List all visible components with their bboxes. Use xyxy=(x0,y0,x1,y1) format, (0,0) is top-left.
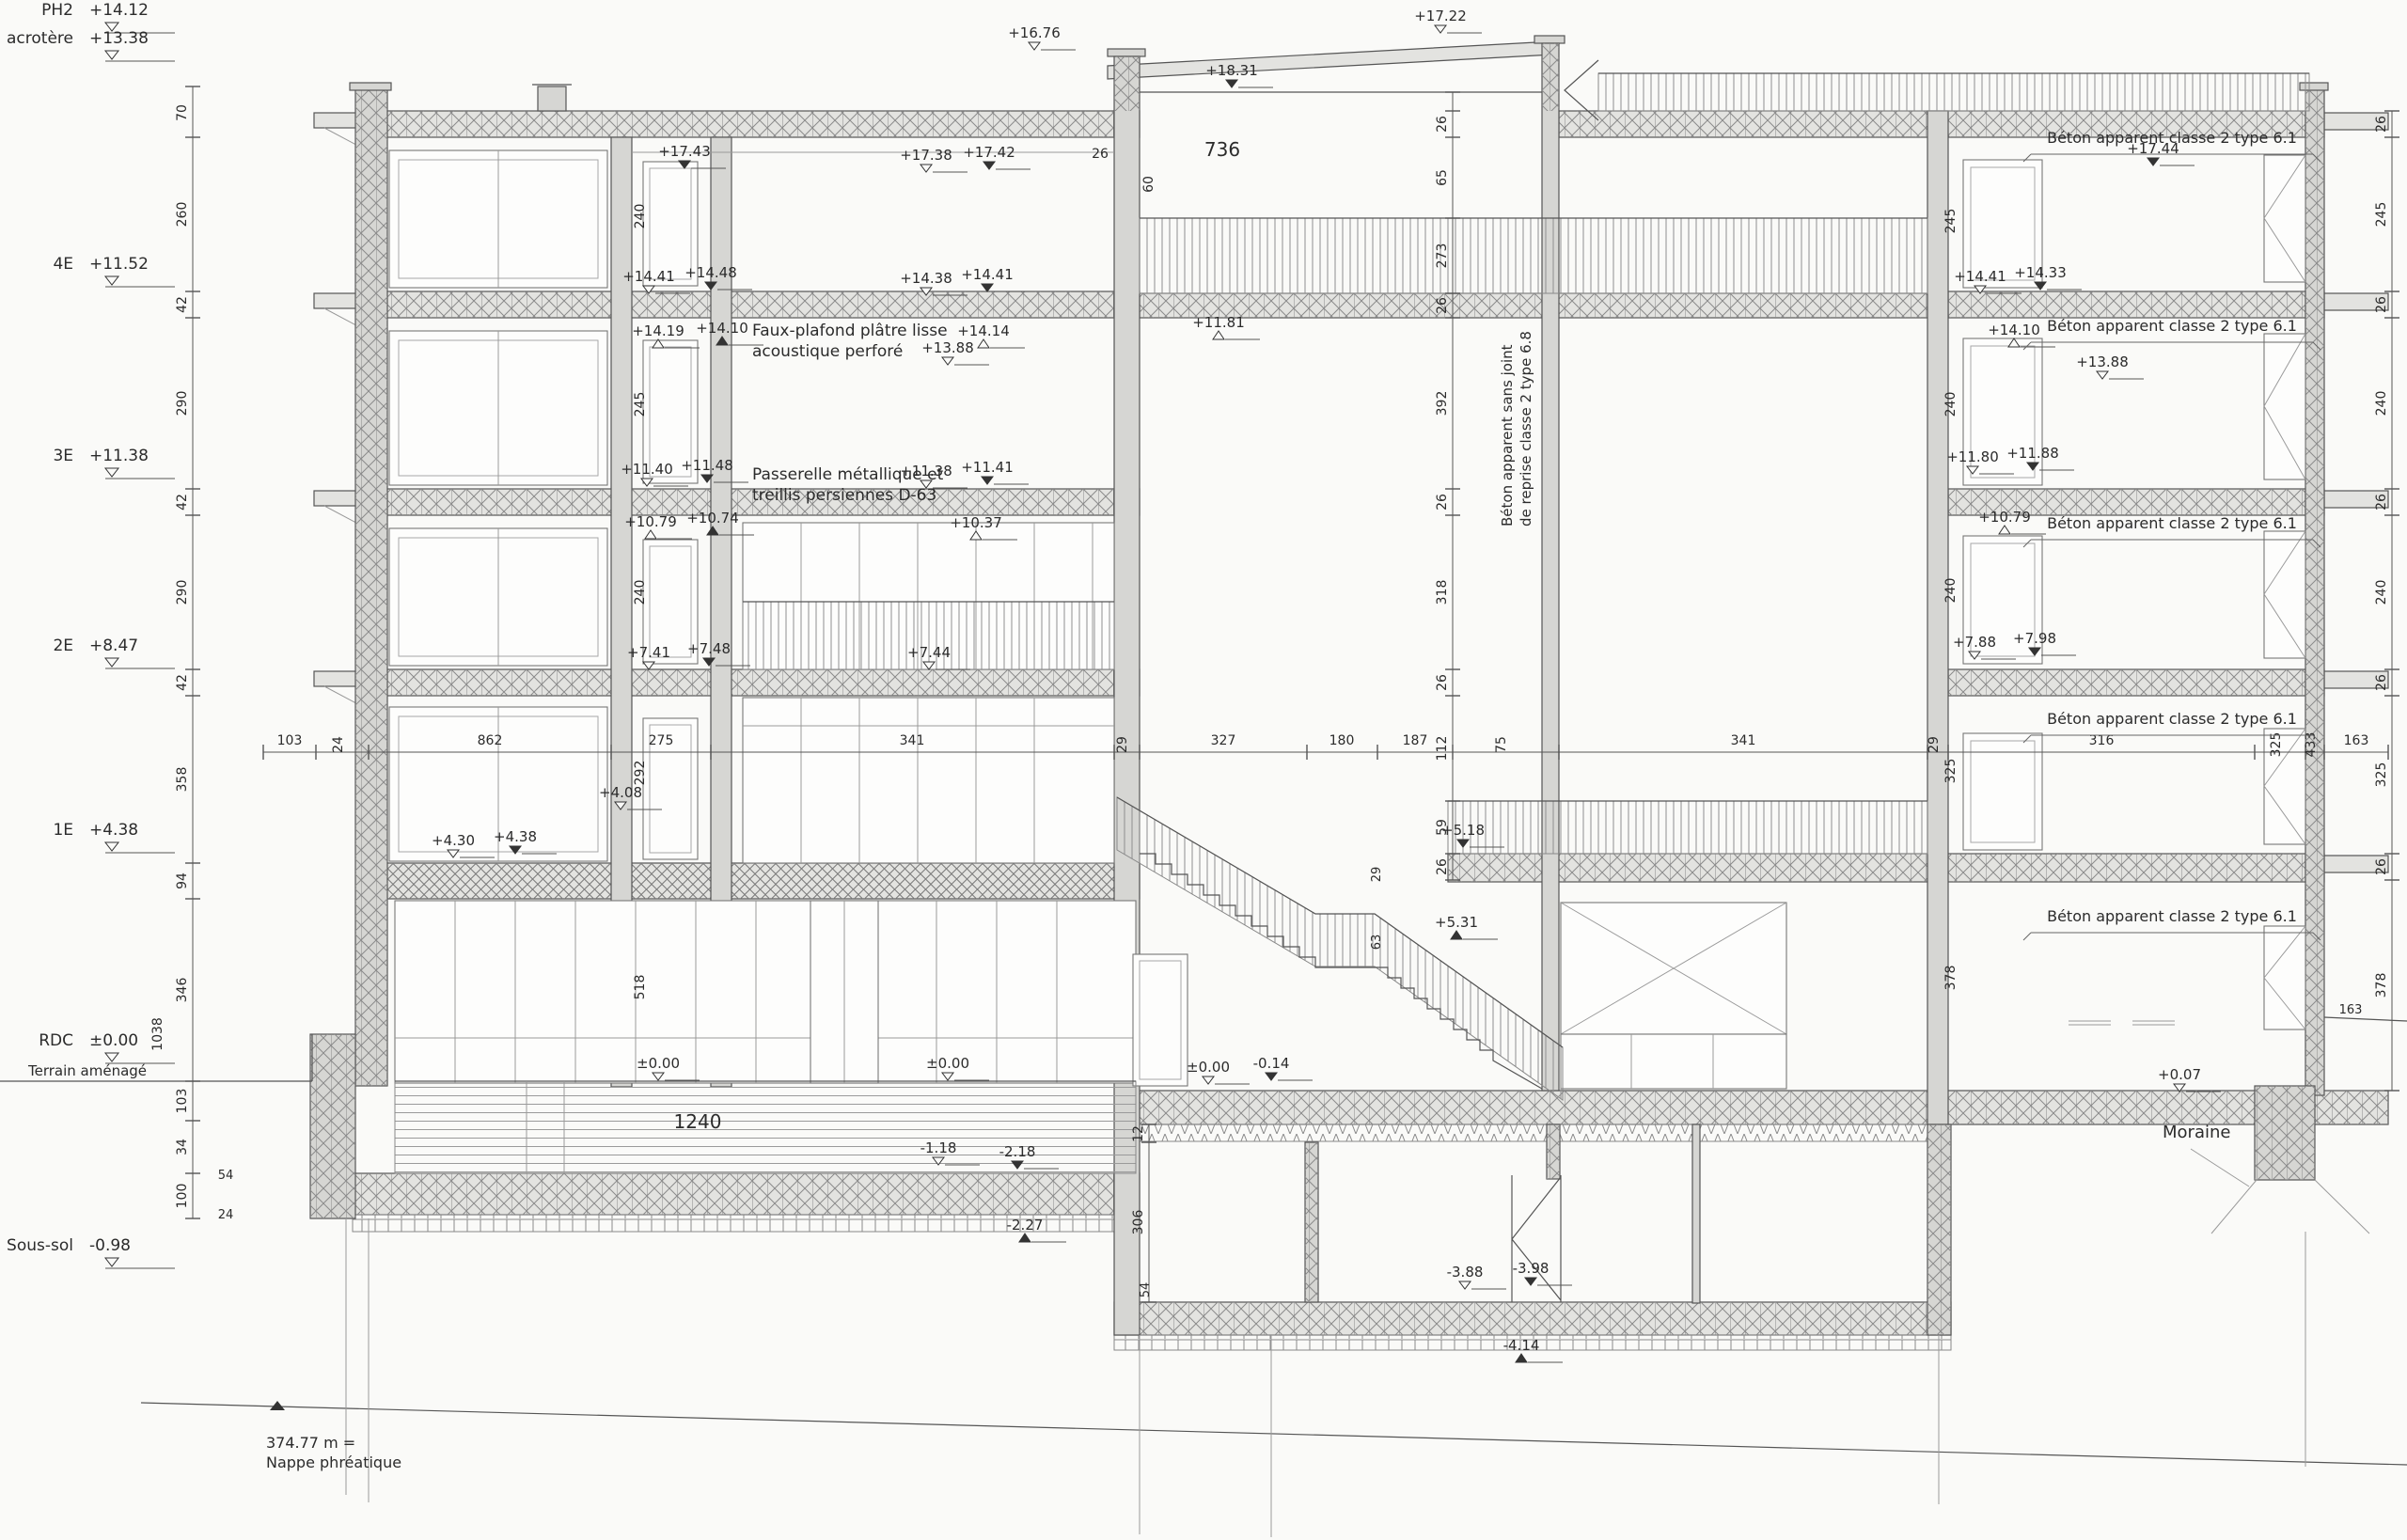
level-value: +14.12 xyxy=(89,1,149,20)
open-triangle-icon xyxy=(105,1053,118,1061)
dim-value: 736 xyxy=(1204,138,1240,161)
note-line: Béton apparent classe 2 type 6.1 xyxy=(2047,710,2297,728)
elevation-mark: +14.41 xyxy=(961,266,1029,291)
elevation-mark: +5.31 xyxy=(1435,914,1498,939)
dim-value: 273 xyxy=(1435,244,1450,269)
elevation-value: +10.79 xyxy=(624,513,677,530)
dim-chain-right-vertical: 2624526240262402632526378 xyxy=(2374,111,2399,1091)
dim-value: 112 xyxy=(1435,736,1450,762)
note: Moraine xyxy=(2163,1123,2230,1142)
elevation-mark: -3.98 xyxy=(1513,1260,1572,1285)
dim-value: 392 xyxy=(1435,391,1450,416)
elevation-value: +14.10 xyxy=(696,320,748,337)
dim-value: 26 xyxy=(2374,674,2389,691)
elevation-value: ±0.00 xyxy=(926,1055,969,1072)
building-section-svg: 7026042290422904235894346103341002624526… xyxy=(0,0,2407,1540)
dim-value: 378 xyxy=(1943,966,1959,991)
building-structure xyxy=(0,36,2407,1537)
elevation-value: +4.30 xyxy=(432,832,475,849)
level-name: RDC xyxy=(39,1031,73,1050)
note-line: treillis persiennes D-63 xyxy=(752,486,936,505)
dim-value: 306 xyxy=(1131,1210,1146,1235)
dim-chain-left-vertical: 702604229042290423589434610334100 xyxy=(175,86,200,1218)
dim-value: 42 xyxy=(175,296,190,313)
dim-value: 378 xyxy=(2374,973,2389,998)
dim-value: 325 xyxy=(2374,762,2389,788)
dim-value: 103 xyxy=(277,733,303,748)
dim-value: 518 xyxy=(633,975,648,1000)
level-name: Sous-sol xyxy=(7,1236,73,1255)
raised-roof xyxy=(1108,36,1598,120)
dim-value: 245 xyxy=(1943,209,1959,234)
level-value: ±0.00 xyxy=(89,1031,138,1050)
court-walkway-railing xyxy=(1140,218,1927,293)
elevation-value: +16.76 xyxy=(1008,24,1061,41)
elevation-value: -1.18 xyxy=(920,1139,957,1156)
dim-value: 260 xyxy=(175,202,190,228)
dim-value: 292 xyxy=(633,761,648,786)
dim-value: 1038 xyxy=(150,1017,165,1051)
filled-triangle-icon xyxy=(2147,158,2159,165)
dim-value: 163 xyxy=(2344,733,2369,748)
roof-slab-left xyxy=(367,111,1140,137)
filled-triangle-icon xyxy=(1266,1073,1277,1080)
filled-triangle-icon xyxy=(1525,1278,1536,1285)
elevation-value: +11.88 xyxy=(2006,445,2059,462)
elevation-value: -2.27 xyxy=(1007,1217,1044,1234)
elevation-value: +18.31 xyxy=(1205,62,1258,79)
dim-value: 100 xyxy=(175,1184,190,1209)
dim-value: 26 xyxy=(1435,858,1450,875)
note-line: Béton apparent classe 2 type 6.1 xyxy=(2047,514,2297,532)
elevation-value: -3.88 xyxy=(1447,1264,1484,1281)
open-triangle-icon xyxy=(105,51,118,59)
dim-value: 245 xyxy=(2374,202,2389,228)
note-line: Passerelle métallique et xyxy=(752,465,944,484)
roof-terrace-railing xyxy=(1598,73,2309,111)
elevation-value: ±0.00 xyxy=(1187,1059,1230,1076)
dim-value: 26 xyxy=(1435,674,1450,691)
level-row: 2E+8.47 xyxy=(53,636,175,668)
level-name: acrotère xyxy=(7,29,73,48)
dim-value: 318 xyxy=(1435,580,1450,605)
level-name: 2E xyxy=(53,636,73,655)
dim-value: 341 xyxy=(1731,733,1756,748)
dim-value: 240 xyxy=(2374,391,2389,416)
level-row: 3E+11.38 xyxy=(53,447,175,479)
dim-value: 34 xyxy=(175,1139,190,1155)
note: Béton apparent sans jointde reprise clas… xyxy=(1499,331,1534,526)
open-triangle-icon xyxy=(1435,25,1446,33)
elevation-value: -0.14 xyxy=(1253,1055,1290,1072)
elevation-value: +14.19 xyxy=(632,322,684,339)
elevation-value: +7.98 xyxy=(2013,630,2056,647)
elevation-value: -3.98 xyxy=(1513,1260,1550,1277)
elevation-value: +17.38 xyxy=(900,147,952,164)
dim-value: 26 xyxy=(1092,147,1109,162)
filled-triangle-icon xyxy=(982,284,993,291)
dim-value: 26 xyxy=(1435,116,1450,133)
right-facade-windows xyxy=(2264,155,2305,1029)
dim-value: 327 xyxy=(1211,733,1236,748)
open-triangle-icon xyxy=(105,1258,118,1266)
level-value: +8.47 xyxy=(89,636,138,655)
elevation-value: +7.41 xyxy=(627,644,670,661)
filled-triangle-icon xyxy=(982,477,993,484)
elevation-value: +13.88 xyxy=(921,339,974,356)
elevation-value: +7.44 xyxy=(907,644,951,661)
elevation-value: +10.37 xyxy=(950,514,1002,531)
dim-chain-court-vertical: 26652732639226318261125926 xyxy=(1435,92,1460,880)
dim-value: 70 xyxy=(175,104,190,121)
floor-slabs-right xyxy=(1140,291,2324,882)
dim-value: 75 xyxy=(1494,736,1509,753)
dim-value: 325 xyxy=(1943,759,1959,784)
left-level-labels: PH2+14.12acrotère+13.384E+11.523E+11.382… xyxy=(7,1,175,1268)
elevation-mark: +17.38 xyxy=(900,147,968,172)
elevation-value: +10.74 xyxy=(686,510,739,526)
dim-value: 240 xyxy=(1943,578,1959,604)
dim-value: 240 xyxy=(633,204,648,229)
elevation-value: +4.08 xyxy=(599,784,642,801)
elevation-value: +11.40 xyxy=(621,461,673,478)
elevation-value: +11.80 xyxy=(1946,448,1999,465)
dim-value: 163 xyxy=(2339,1003,2363,1017)
elevation-mark: +13.88 xyxy=(2076,354,2144,379)
level-row: 4E+11.52 xyxy=(53,255,175,287)
groundwater-line xyxy=(141,1403,2407,1465)
dim-value: 290 xyxy=(175,580,190,605)
open-triangle-icon xyxy=(942,357,953,365)
level-row: 1E+4.38 xyxy=(53,821,175,853)
elevation-value: +5.31 xyxy=(1435,914,1478,931)
elevation-value: +17.22 xyxy=(1414,8,1467,24)
level-name: PH2 xyxy=(41,1,73,20)
elevation-value: +13.88 xyxy=(2076,354,2129,370)
dim-value: 65 xyxy=(1435,169,1450,186)
open-triangle-icon xyxy=(1459,1281,1471,1289)
dim-value: 180 xyxy=(1329,733,1355,748)
open-triangle-icon xyxy=(105,276,118,285)
note-line: de reprise classe 2 type 6.8 xyxy=(1518,331,1534,526)
elevation-value: +14.41 xyxy=(622,268,675,285)
dim-value: 24 xyxy=(218,1208,234,1222)
elevation-mark: +17.22 xyxy=(1414,8,1482,33)
note: 374.77 m =Nappe phréatique xyxy=(266,1434,401,1471)
open-triangle-icon xyxy=(1999,526,2010,534)
level-value: +4.38 xyxy=(89,821,138,840)
elevation-value: +14.10 xyxy=(1988,322,2040,338)
dim-value: 325 xyxy=(2269,732,2284,758)
court-entrance-glazing xyxy=(1561,903,1786,1089)
dim-value: 26 xyxy=(2374,116,2389,133)
elevation-value: ±0.00 xyxy=(637,1055,680,1072)
elevation-value: -2.18 xyxy=(999,1143,1036,1160)
dim-value: 290 xyxy=(175,391,190,416)
dim-value: 26 xyxy=(2374,858,2389,875)
dim-value: 54 xyxy=(218,1169,234,1183)
elevation-mark: ±0.00 xyxy=(1187,1059,1250,1084)
elevation-mark: +10.79 xyxy=(624,513,692,539)
elevation-value: +14.41 xyxy=(1954,268,2006,285)
level-row: acrotère+13.38 xyxy=(7,29,175,61)
note-line: Nappe phréatique xyxy=(266,1454,401,1471)
filled-triangle-icon xyxy=(1451,931,1462,939)
note-line: 374.77 m = xyxy=(266,1434,355,1452)
note-line: Béton apparent classe 2 type 6.1 xyxy=(2047,907,2297,925)
court-wall xyxy=(1542,43,1559,1091)
dim-value: 42 xyxy=(175,674,190,691)
dim-value: 275 xyxy=(649,733,674,748)
level-name: 3E xyxy=(53,447,73,465)
elevation-value: +17.42 xyxy=(963,144,1015,161)
note-line: Moraine xyxy=(2163,1123,2230,1142)
elevation-value: +14.38 xyxy=(900,270,952,287)
dim-value: 26 xyxy=(1435,297,1450,314)
elevation-mark: -3.88 xyxy=(1447,1264,1506,1289)
elevation-value: +14.33 xyxy=(2014,264,2067,281)
note-line: Faux-plafond plâtre lisse xyxy=(752,322,948,340)
elevation-value: +0.07 xyxy=(2158,1066,2201,1083)
note-line: Béton apparent classe 2 type 6.1 xyxy=(2047,129,2297,147)
elevation-value: +11.48 xyxy=(681,457,733,474)
sill-dashes xyxy=(2069,1021,2175,1025)
elevation-mark: +13.88 xyxy=(921,339,989,365)
open-triangle-icon xyxy=(1213,331,1224,339)
dim-value: 187 xyxy=(1403,733,1428,748)
elevation-value: +14.48 xyxy=(684,264,737,281)
ground-glazing xyxy=(395,901,1136,1083)
dim-value: 29 xyxy=(1370,867,1384,883)
open-triangle-icon xyxy=(2097,371,2108,379)
elevation-value: +7.88 xyxy=(1953,634,1996,651)
level-row: PH2+14.12 xyxy=(41,1,175,33)
elevation-value: +10.79 xyxy=(1978,509,2031,526)
elevation-value: +11.81 xyxy=(1192,314,1245,331)
level-value: +13.38 xyxy=(89,29,149,48)
level-value: +11.38 xyxy=(89,447,149,465)
level-name: 4E xyxy=(53,255,73,274)
dim-value: 26 xyxy=(1435,494,1450,511)
elevation-value: -4.14 xyxy=(1503,1337,1540,1354)
dim-value: 42 xyxy=(175,494,190,511)
elevation-mark: +0.07 xyxy=(2158,1066,2221,1092)
open-triangle-icon xyxy=(1203,1076,1214,1084)
groundwater-marker-icon xyxy=(270,1401,285,1410)
dim-value: 103 xyxy=(175,1089,190,1114)
elevation-value: +11.41 xyxy=(961,459,1014,476)
elevation-mark: -0.14 xyxy=(1253,1055,1313,1080)
dim-value: 346 xyxy=(175,978,190,1003)
note: Passerelle métallique ettreillis persien… xyxy=(752,465,944,505)
dim-value: 240 xyxy=(1943,392,1959,417)
curtain-wall-f2 xyxy=(743,698,1114,863)
note-line: acoustique perforé xyxy=(752,342,903,361)
open-triangle-icon xyxy=(105,468,118,477)
dim-value: 63 xyxy=(1370,935,1384,951)
open-triangle-icon xyxy=(1029,42,1040,50)
open-triangle-icon xyxy=(643,662,654,669)
terrain-label: Terrain aménagé xyxy=(27,1062,147,1079)
section-drawing-canvas: 7026042290422904235894346103341002624526… xyxy=(0,0,2407,1540)
dim-value: 29 xyxy=(1115,736,1130,753)
roof-vent xyxy=(538,86,566,111)
elevation-mark: +17.42 xyxy=(963,144,1030,169)
dim-value: 358 xyxy=(175,767,190,793)
dim-value: 433 xyxy=(2304,732,2319,758)
elevation-value: +14.41 xyxy=(961,266,1014,283)
note: Faux-plafond plâtre lisseacoustique perf… xyxy=(752,322,948,361)
elevation-mark: +11.41 xyxy=(961,459,1029,484)
dim-value: 60 xyxy=(1141,176,1156,193)
dim-value: 26 xyxy=(2374,494,2389,511)
open-triangle-icon xyxy=(105,658,118,667)
dim-value: 54 xyxy=(1139,1282,1153,1298)
level-name: 1E xyxy=(53,821,73,840)
elevation-value: +5.18 xyxy=(1441,822,1485,839)
dim-value: 240 xyxy=(2374,580,2389,605)
dim-value: 26 xyxy=(2374,296,2389,313)
dim-value: 240 xyxy=(633,580,648,605)
elevation-value: +7.48 xyxy=(687,640,731,657)
filled-triangle-icon xyxy=(1516,1354,1527,1362)
open-triangle-icon xyxy=(645,530,656,539)
elevation-value: +17.43 xyxy=(658,143,711,160)
elevation-value: +14.14 xyxy=(957,322,1010,339)
level-value: +11.52 xyxy=(89,255,149,274)
open-triangle-icon xyxy=(920,165,932,172)
dim-value: 29 xyxy=(1927,736,1942,753)
elevation-mark: +16.76 xyxy=(1008,24,1076,50)
dim-value: 12 xyxy=(1131,1125,1146,1142)
note-line: Béton apparent classe 2 type 6.1 xyxy=(2047,317,2297,335)
dim-value: 341 xyxy=(900,733,925,748)
dim-value: 24 xyxy=(331,736,346,753)
level-value: -0.98 xyxy=(89,1236,131,1255)
level-row: Sous-sol-0.98 xyxy=(7,1236,175,1268)
dim-value: 94 xyxy=(175,872,190,889)
court-mid-railing xyxy=(1448,801,1927,854)
open-triangle-icon xyxy=(105,842,118,851)
open-triangle-icon xyxy=(978,339,989,348)
dim-value: 862 xyxy=(478,733,503,748)
note-line: Béton apparent sans joint xyxy=(1499,344,1516,526)
elevation-value: +4.38 xyxy=(494,828,537,845)
filled-triangle-icon xyxy=(983,162,995,169)
dim-value: 1240 xyxy=(674,1110,722,1133)
filled-triangle-icon xyxy=(1019,1234,1030,1242)
dim-value: 245 xyxy=(633,392,648,417)
filled-triangle-icon xyxy=(1226,80,1237,87)
